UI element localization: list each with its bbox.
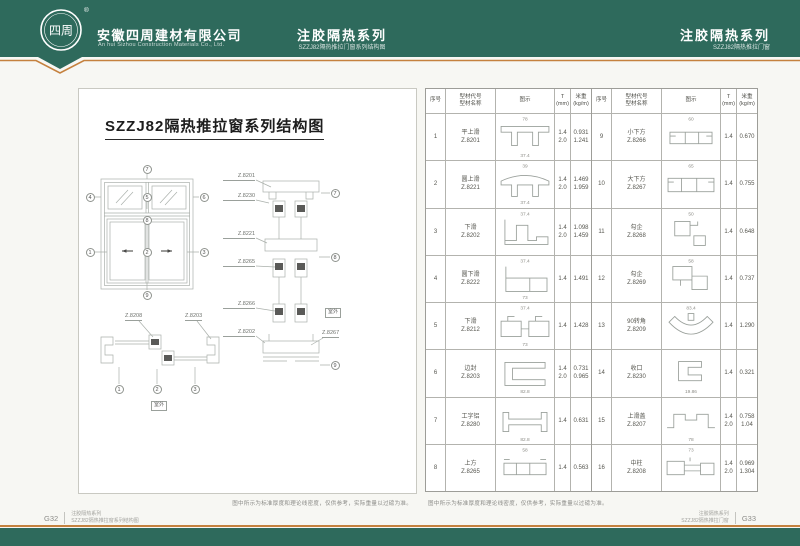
row-no: 6 bbox=[426, 350, 445, 396]
row-diagram: 78 bbox=[661, 398, 720, 444]
cell-text: 1.469 bbox=[573, 176, 588, 184]
row-weight: 0.648 bbox=[736, 209, 757, 255]
footer-divider bbox=[64, 512, 65, 524]
row-diagram: 73 bbox=[661, 445, 720, 491]
cell-text: 2.0 bbox=[558, 137, 566, 145]
cell-text: 0.969 bbox=[739, 460, 754, 468]
company-name-en: An hui Sizhou Construction Materials Co.… bbox=[98, 42, 224, 48]
cell-text: 1.241 bbox=[573, 137, 588, 145]
weight-note-right: 图中所示为标准厚度和理论线密度，仅供参考，实际重量以过磅为准。 bbox=[428, 499, 608, 507]
cell-text: Z.8266 bbox=[627, 137, 646, 145]
callout-9: 9 bbox=[143, 291, 152, 300]
cell-text: 边封 bbox=[464, 365, 476, 373]
cell-text: 4 bbox=[434, 275, 437, 283]
cell-text: 0.670 bbox=[739, 133, 754, 141]
table-row: 2圆上滑Z.82213937.41.42.01.4691.959 bbox=[426, 160, 591, 207]
cell-text: 型材名称 bbox=[459, 101, 481, 108]
cell-text: 型材代号 bbox=[459, 94, 481, 101]
horizontal-section bbox=[101, 321, 219, 384]
cell-text: 中柱 bbox=[630, 460, 642, 468]
row-no: 11 bbox=[592, 209, 611, 255]
footer-left: G32 注胶隔热系列 SZZJ82隔热推拉窗系列结构图 bbox=[44, 511, 139, 526]
dimension-top: 37.4 bbox=[520, 211, 530, 217]
cell-text: 5 bbox=[434, 322, 437, 330]
cell-text: Z.8201 bbox=[461, 137, 480, 145]
dimension-bottom: 37.4 bbox=[520, 153, 530, 159]
gasket-blocks bbox=[275, 205, 305, 315]
footer-band bbox=[0, 528, 800, 546]
footer-right: G33 注胶隔热系列 SZZJ82隔热推拉门窗 bbox=[681, 511, 756, 526]
cell-text: 平上滑 bbox=[461, 129, 479, 137]
profile-label: Z.8203 bbox=[185, 313, 202, 321]
cell-text: 1.4 bbox=[558, 417, 566, 425]
cell-text: Z.8280 bbox=[461, 421, 480, 429]
row-profile-name: 90转角Z.8209 bbox=[611, 303, 661, 349]
cell-text: 0.648 bbox=[739, 228, 754, 236]
cell-text: 1.4 bbox=[724, 413, 732, 421]
cell-text: 1.4 bbox=[558, 365, 566, 373]
row-diagram: 37.473 bbox=[495, 256, 554, 302]
cell-text: 3 bbox=[434, 228, 437, 236]
profile-label: Z.8201 bbox=[223, 173, 255, 181]
row-weight: 0.9311.241 bbox=[570, 114, 591, 160]
hsection-callout-3: 3 bbox=[191, 385, 200, 394]
profile-sketch-round-bottom-track: 37.473 bbox=[496, 257, 554, 301]
cell-text: 1.4 bbox=[558, 176, 566, 184]
cell-text: 下滑 bbox=[464, 224, 476, 232]
cell-text: 0.631 bbox=[573, 417, 588, 425]
cell-text: (mm) bbox=[556, 101, 569, 108]
outdoor-label: 室外 bbox=[151, 401, 167, 411]
registered-mark: ® bbox=[84, 6, 89, 14]
cell-text: 下滑 bbox=[464, 318, 476, 326]
profile-sketch-big-bottom-rail: 65 bbox=[662, 162, 720, 206]
window-elevation bbox=[95, 174, 199, 290]
table-row: 1平上滑Z.82017837.41.42.00.9311.241 bbox=[426, 113, 591, 160]
cell-text: 大下方 bbox=[627, 176, 645, 184]
header-profile: 型材代号型材名称 bbox=[611, 89, 661, 113]
dimension-bottom: 73 bbox=[522, 342, 528, 348]
row-no: 8 bbox=[426, 445, 445, 491]
dimension-bottom: 82.8 bbox=[520, 389, 530, 395]
table-row: 1390转角Z.820983.41.41.290 bbox=[592, 302, 757, 349]
cell-text: 10 bbox=[598, 180, 605, 188]
cell-text: 1.4 bbox=[558, 464, 566, 472]
profile-label: Z.8208 bbox=[125, 313, 142, 321]
dimension-top: 65 bbox=[688, 164, 694, 170]
cell-text: 0.931 bbox=[573, 129, 588, 137]
row-thickness: 1.4 bbox=[720, 256, 736, 302]
cell-text: 1.491 bbox=[573, 275, 588, 283]
footer-divider bbox=[735, 512, 736, 524]
row-no: 5 bbox=[426, 303, 445, 349]
cell-text: 1.098 bbox=[573, 224, 588, 232]
cell-text: 0.321 bbox=[739, 369, 754, 377]
row-diagram: 65 bbox=[661, 161, 720, 207]
row-profile-name: 圆上滑Z.8221 bbox=[445, 161, 495, 207]
row-thickness: 1.4 bbox=[720, 303, 736, 349]
series-subtitle-center: SZZJ82隔热推拉门窗系列结构图 bbox=[262, 42, 422, 51]
cell-text: 13 bbox=[598, 322, 605, 330]
row-profile-name: 上滑盖Z.8207 bbox=[611, 398, 661, 444]
cell-text: 15 bbox=[598, 417, 605, 425]
cell-text: 9 bbox=[600, 133, 603, 141]
header-diagram: 图示 bbox=[661, 89, 720, 113]
cell-text: Z.8207 bbox=[627, 421, 646, 429]
dimension-top: 58 bbox=[688, 259, 694, 265]
row-no: 7 bbox=[426, 398, 445, 444]
row-profile-name: 小下方Z.8266 bbox=[611, 114, 661, 160]
profile-label: Z.8221 bbox=[223, 231, 255, 239]
cell-text: 2.0 bbox=[724, 468, 732, 476]
table-row: 3下滑Z.820237.41.42.01.0981.459 bbox=[426, 208, 591, 255]
cell-text: 0.758 bbox=[739, 413, 754, 421]
table-half: 序号型材代号型材名称图示T(mm)米重(kg/m)1平上滑Z.82017837.… bbox=[426, 89, 591, 491]
row-weight: 1.428 bbox=[570, 303, 591, 349]
vsection-callout-7: 7 bbox=[331, 189, 340, 198]
row-thickness: 1.42.0 bbox=[554, 161, 570, 207]
profile-sketch-mullion: 73 bbox=[662, 446, 720, 490]
row-diagram: 82.8 bbox=[495, 350, 554, 396]
cell-text: 1.4 bbox=[558, 322, 566, 330]
cell-text: Z.8208 bbox=[627, 468, 646, 476]
dimension-bottom: 78 bbox=[688, 437, 694, 443]
cell-text: 1.04 bbox=[741, 421, 753, 429]
cell-text: Z.8267 bbox=[627, 184, 646, 192]
row-weight: 0.670 bbox=[736, 114, 757, 160]
table-row: 12勾企Z.8269581.40.737 bbox=[592, 255, 757, 302]
cell-text: 16 bbox=[598, 464, 605, 472]
profile-label: Z.8230 bbox=[223, 193, 255, 201]
row-weight: 0.737 bbox=[736, 256, 757, 302]
profile-label: Z.8266 bbox=[223, 301, 255, 309]
cell-text: 2.0 bbox=[558, 232, 566, 240]
profile-sketch-top-cover: 78 bbox=[662, 399, 720, 443]
cell-text: 0.755 bbox=[739, 180, 754, 188]
table-row: 6边封Z.820382.81.42.00.7310.965 bbox=[426, 349, 591, 396]
row-profile-name: 边封Z.8203 bbox=[445, 350, 495, 396]
profile-sketch-side-seal: 82.8 bbox=[496, 351, 554, 395]
outdoor-label: 室外 bbox=[325, 308, 341, 318]
row-weight: 0.755 bbox=[736, 161, 757, 207]
row-profile-name: 勾企Z.8268 bbox=[611, 209, 661, 255]
table-row: 10大下方Z.8267651.40.755 bbox=[592, 160, 757, 207]
row-diagram: 19.86 bbox=[661, 350, 720, 396]
cell-text: 圆下滑 bbox=[461, 271, 479, 279]
callout-6: 6 bbox=[200, 193, 209, 202]
profile-label: Z.8267 bbox=[322, 330, 339, 338]
row-diagram: 37.4 bbox=[495, 209, 554, 255]
cell-text: 米重 bbox=[741, 94, 752, 101]
cell-text: 1.4 bbox=[724, 460, 732, 468]
cell-text: 8 bbox=[434, 464, 437, 472]
row-profile-name: 中柱Z.8208 bbox=[611, 445, 661, 491]
cell-text: 图示 bbox=[519, 97, 530, 104]
cell-text: 14 bbox=[598, 369, 605, 377]
cell-text: 11 bbox=[598, 228, 604, 236]
profile-label: Z.8265 bbox=[223, 259, 255, 267]
row-weight: 1.491 bbox=[570, 256, 591, 302]
cell-text: 1.4 bbox=[724, 180, 732, 188]
dimension-top: 39 bbox=[522, 164, 528, 170]
row-profile-name: 上方Z.8265 bbox=[445, 445, 495, 491]
table-row: 5下滑Z.821237.4731.41.428 bbox=[426, 302, 591, 349]
dimension-top: 37.4 bbox=[520, 259, 530, 265]
table-header-row: 序号型材代号型材名称图示T(mm)米重(kg/m) bbox=[426, 89, 591, 113]
cell-text: 2.0 bbox=[558, 184, 566, 192]
header-diagram: 图示 bbox=[495, 89, 554, 113]
cell-text: 0.965 bbox=[573, 373, 588, 381]
dimension-top: 60 bbox=[688, 117, 694, 123]
row-profile-name: 下滑Z.8202 bbox=[445, 209, 495, 255]
cell-text: 1.290 bbox=[739, 322, 754, 330]
cell-text: 序号 bbox=[430, 97, 441, 104]
table-row: 14收口Z.823019.861.40.321 bbox=[592, 349, 757, 396]
cell-text: 2 bbox=[434, 180, 437, 188]
dimension-bottom: 73 bbox=[522, 295, 528, 301]
cell-text: T bbox=[561, 94, 564, 101]
table-row: 11勾企Z.8268501.40.648 bbox=[592, 208, 757, 255]
row-thickness: 1.4 bbox=[554, 303, 570, 349]
row-thickness: 1.4 bbox=[554, 445, 570, 491]
cell-text: 0.737 bbox=[739, 275, 754, 283]
profile-sketch-i-beam: 82.8 bbox=[496, 399, 554, 443]
structure-drawing-page: SZZJ82隔热推拉窗系列结构图 bbox=[78, 88, 417, 494]
cell-text: 序号 bbox=[596, 97, 607, 104]
cell-text: (kg/m) bbox=[573, 101, 589, 108]
row-no: 1 bbox=[426, 114, 445, 160]
cell-text: 1.4 bbox=[724, 369, 732, 377]
callout-7: 7 bbox=[143, 165, 152, 174]
cell-text: T bbox=[727, 94, 730, 101]
row-diagram: 83.4 bbox=[661, 303, 720, 349]
callout-1: 1 bbox=[86, 248, 95, 257]
row-thickness: 1.4 bbox=[554, 256, 570, 302]
dimension-bottom: 37.4 bbox=[520, 200, 530, 206]
cell-text: 1 bbox=[434, 133, 437, 141]
cell-text: 2.0 bbox=[724, 421, 732, 429]
profile-sketch-corner-90: 83.4 bbox=[662, 304, 720, 348]
row-thickness: 1.42.0 bbox=[554, 350, 570, 396]
header-profile: 型材代号型材名称 bbox=[445, 89, 495, 113]
cell-text: 1.428 bbox=[573, 322, 588, 330]
table-row: 9小下方Z.8266601.40.670 bbox=[592, 113, 757, 160]
dimension-top: 50 bbox=[688, 211, 694, 217]
table-row: 16中柱Z.8208731.42.00.9691.304 bbox=[592, 444, 757, 491]
callout-8: 8 bbox=[143, 216, 152, 225]
profile-spec-table: 序号型材代号型材名称图示T(mm)米重(kg/m)1平上滑Z.82017837.… bbox=[425, 88, 758, 492]
dimension-top: 58 bbox=[522, 448, 528, 454]
cell-text: 1.4 bbox=[558, 129, 566, 137]
row-diagram: 3937.4 bbox=[495, 161, 554, 207]
cell-text: 型材代号 bbox=[625, 94, 647, 101]
catalog-spread: 四周 ® 安徽四周建材有限公司 An hui Sizhou Constructi… bbox=[0, 0, 800, 546]
cell-text: 1.4 bbox=[724, 133, 732, 141]
table-half: 序号型材代号型材名称图示T(mm)米重(kg/m)9小下方Z.8266601.4… bbox=[591, 89, 757, 491]
header-weight: 米重(kg/m) bbox=[736, 89, 757, 113]
row-diagram: 58 bbox=[661, 256, 720, 302]
dimension-top: 37.4 bbox=[520, 306, 530, 312]
row-profile-name: 大下方Z.8267 bbox=[611, 161, 661, 207]
page-number-left: G32 bbox=[44, 514, 58, 523]
cell-text: 1.4 bbox=[724, 275, 732, 283]
profile-sketch-top-rail-box: 58 bbox=[496, 446, 554, 490]
row-profile-name: 下滑Z.8212 bbox=[445, 303, 495, 349]
row-weight: 0.9691.304 bbox=[736, 445, 757, 491]
dimension-top: 83.4 bbox=[686, 306, 696, 312]
row-weight: 1.0981.459 bbox=[570, 209, 591, 255]
row-no: 4 bbox=[426, 256, 445, 302]
callout-2: 2 bbox=[143, 248, 152, 257]
weight-note-left: 图中所示为标准厚度和理论线密度，仅供参考，实际重量以过磅为准。 bbox=[232, 499, 412, 507]
row-no: 10 bbox=[592, 161, 611, 207]
dimension-bottom: 82.8 bbox=[520, 437, 530, 443]
row-no: 13 bbox=[592, 303, 611, 349]
dimension-bottom: 19.86 bbox=[685, 389, 697, 395]
table-row: 8上方Z.8265581.40.563 bbox=[426, 444, 591, 491]
profile-sketch-flat-top-track: 7837.4 bbox=[496, 115, 554, 159]
dimension-top: 78 bbox=[522, 117, 528, 123]
profile-sketch-hook-stile-a: 50 bbox=[662, 210, 720, 254]
cell-text: 0.731 bbox=[573, 365, 588, 373]
row-weight: 0.7581.04 bbox=[736, 398, 757, 444]
cell-text: 1.959 bbox=[573, 184, 588, 192]
row-diagram: 60 bbox=[661, 114, 720, 160]
hsection-callout-2: 2 bbox=[153, 385, 162, 394]
cell-text: Z.8265 bbox=[461, 468, 480, 476]
row-profile-name: 工字铝Z.8280 bbox=[445, 398, 495, 444]
cell-text: (mm) bbox=[722, 101, 735, 108]
cell-text: 2.0 bbox=[558, 373, 566, 381]
row-weight: 1.4691.959 bbox=[570, 161, 591, 207]
cell-text: 1.4 bbox=[558, 275, 566, 283]
header-thickness: T(mm) bbox=[720, 89, 736, 113]
row-profile-name: 收口Z.8230 bbox=[611, 350, 661, 396]
cell-text: Z.8268 bbox=[627, 232, 646, 240]
cell-text: 勾企 bbox=[630, 224, 642, 232]
table-row: 15上滑盖Z.8207781.42.00.7581.04 bbox=[592, 397, 757, 444]
cell-text: (kg/m) bbox=[739, 101, 755, 108]
cell-text: Z.8230 bbox=[627, 373, 646, 381]
row-no: 2 bbox=[426, 161, 445, 207]
row-diagram: 37.473 bbox=[495, 303, 554, 349]
profile-sketch-twin-box-track: 37.473 bbox=[496, 304, 554, 348]
cell-text: 图示 bbox=[685, 97, 696, 104]
row-weight: 0.563 bbox=[570, 445, 591, 491]
cell-text: Z.8209 bbox=[627, 326, 646, 334]
row-weight: 0.631 bbox=[570, 398, 591, 444]
table-header-row: 序号型材代号型材名称图示T(mm)米重(kg/m) bbox=[592, 89, 757, 113]
cell-text: 上滑盖 bbox=[627, 413, 645, 421]
row-no: 14 bbox=[592, 350, 611, 396]
cell-text: 型材名称 bbox=[625, 101, 647, 108]
row-weight: 0.7310.965 bbox=[570, 350, 591, 396]
series-subtitle-right: SZZJ82隔热推拉门窗 bbox=[713, 42, 770, 51]
header-no: 序号 bbox=[426, 89, 445, 113]
callout-4: 4 bbox=[86, 193, 95, 202]
row-thickness: 1.4 bbox=[554, 398, 570, 444]
cell-text: Z.8212 bbox=[461, 326, 480, 334]
row-profile-name: 平上滑Z.8201 bbox=[445, 114, 495, 160]
row-thickness: 1.42.0 bbox=[554, 209, 570, 255]
row-profile-name: 勾企Z.8269 bbox=[611, 256, 661, 302]
cell-text: 收口 bbox=[630, 365, 642, 373]
page-number-right: G33 bbox=[742, 514, 756, 523]
logo-characters: 四周 bbox=[49, 24, 73, 38]
row-diagram: 7837.4 bbox=[495, 114, 554, 160]
cell-text: 12 bbox=[598, 275, 605, 283]
row-weight: 0.321 bbox=[736, 350, 757, 396]
row-diagram: 82.8 bbox=[495, 398, 554, 444]
row-thickness: 1.42.0 bbox=[720, 445, 736, 491]
profile-sketch-round-top-track: 3937.4 bbox=[496, 162, 554, 206]
header-weight: 米重(kg/m) bbox=[570, 89, 591, 113]
cell-text: Z.8222 bbox=[461, 279, 480, 287]
cell-text: Z.8269 bbox=[627, 279, 646, 287]
cell-text: 90转角 bbox=[627, 318, 646, 326]
cell-text: 米重 bbox=[575, 94, 586, 101]
row-no: 16 bbox=[592, 445, 611, 491]
row-no: 3 bbox=[426, 209, 445, 255]
cell-text: 1.459 bbox=[573, 232, 588, 240]
cell-text: 6 bbox=[434, 369, 437, 377]
cell-text: Z.8202 bbox=[461, 232, 480, 240]
hsection-callout-1: 1 bbox=[115, 385, 124, 394]
row-profile-name: 圆下滑Z.8222 bbox=[445, 256, 495, 302]
callout-3: 3 bbox=[200, 248, 209, 257]
row-thickness: 1.4 bbox=[720, 161, 736, 207]
header-thickness: T(mm) bbox=[554, 89, 570, 113]
table-row: 7工字铝Z.828082.81.40.631 bbox=[426, 397, 591, 444]
row-thickness: 1.42.0 bbox=[554, 114, 570, 160]
row-diagram: 58 bbox=[495, 445, 554, 491]
row-no: 12 bbox=[592, 256, 611, 302]
cell-text: 上方 bbox=[464, 460, 476, 468]
profile-sketch-small-bottom-rail: 60 bbox=[662, 115, 720, 159]
profile-sketch-end-cap: 19.86 bbox=[662, 351, 720, 395]
cell-text: 0.563 bbox=[573, 464, 588, 472]
cell-text: Z.8203 bbox=[461, 373, 480, 381]
vertical-section bbox=[256, 180, 330, 365]
header-no: 序号 bbox=[592, 89, 611, 113]
row-no: 15 bbox=[592, 398, 611, 444]
vsection-callout-8: 8 bbox=[331, 253, 340, 262]
row-diagram: 50 bbox=[661, 209, 720, 255]
cell-text: 1.4 bbox=[558, 224, 566, 232]
table-row: 4圆下滑Z.822237.4731.41.491 bbox=[426, 255, 591, 302]
callout-5: 5 bbox=[143, 193, 152, 202]
row-thickness: 1.4 bbox=[720, 114, 736, 160]
row-thickness: 1.4 bbox=[720, 350, 736, 396]
profile-sketch-hook-stile-b: 58 bbox=[662, 257, 720, 301]
cell-text: 小下方 bbox=[627, 129, 645, 137]
cell-text: 圆上滑 bbox=[461, 176, 479, 184]
vsection-callout-9: 9 bbox=[331, 361, 340, 370]
footer-accent-line bbox=[0, 525, 800, 527]
row-thickness: 1.42.0 bbox=[720, 398, 736, 444]
cell-text: 勾企 bbox=[630, 271, 642, 279]
cell-text: 1.4 bbox=[724, 322, 732, 330]
profile-sketch-bottom-track-step: 37.4 bbox=[496, 210, 554, 254]
cell-text: 1.4 bbox=[724, 228, 732, 236]
window-structure-diagram bbox=[79, 89, 416, 493]
row-no: 9 bbox=[592, 114, 611, 160]
profile-label: Z.8202 bbox=[223, 329, 255, 337]
row-thickness: 1.4 bbox=[720, 209, 736, 255]
cell-text: 工字铝 bbox=[461, 413, 479, 421]
dimension-top: 73 bbox=[688, 448, 694, 454]
cell-text: Z.8221 bbox=[461, 184, 480, 192]
